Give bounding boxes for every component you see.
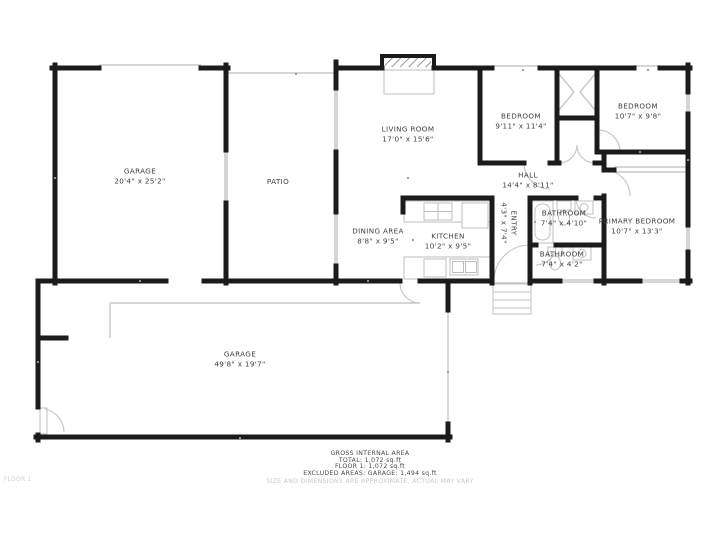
floor-plan-page: GARAGE 20'4" x 25'2" PATIO LIVING ROOM 1… <box>0 0 720 556</box>
fridge <box>462 203 488 228</box>
dishwasher <box>424 259 446 277</box>
room-label-bedroom-2: BEDROOM 10'7" x 9'8" <box>615 101 661 120</box>
summary-excluded: EXCLUDED AREAS: GARAGE: 1,494 sq.ft <box>266 471 473 478</box>
room-label-bedroom-1: BEDROOM 9'11" x 11'4" <box>495 111 546 130</box>
room-label-garage-top: GARAGE 20'4" x 25'2" <box>114 166 165 185</box>
room-label-hall: HALL 14'4" x 8'11" <box>502 170 553 189</box>
room-label-dining-area: DINING AREA 8'8" x 9'5" <box>352 226 404 245</box>
walls <box>36 56 690 440</box>
summary-disclaimer: SIZE AND DIMENSIONS ARE APPROXIMATE, ACT… <box>266 479 473 486</box>
room-label-primary-bedroom: PRIMARY BEDROOM 10'7" x 13'3" <box>599 216 676 235</box>
room-label-entry: ENTRY 4'3" x 7'4" <box>499 202 518 244</box>
door-leaf <box>40 408 47 434</box>
room-label-bathroom-2: BATHROOM 7'4" x 4'2" <box>540 249 584 268</box>
room-label-bathroom-1: BATHROOM 7'4" x 4'10" <box>541 208 587 227</box>
porch-steps <box>493 284 531 314</box>
room-label-living-room: LIVING ROOM 17'0" x 15'6" <box>382 124 435 143</box>
room-label-garage-bottom: GARAGE 49'8" x 19'7" <box>214 349 265 368</box>
room-label-patio: PATIO <box>267 177 289 187</box>
room-label-kitchen: KITCHEN 10'2" x 9'5" <box>425 231 471 250</box>
area-summary: GROSS INTERNAL AREA TOTAL: 1,072 sq.ft F… <box>266 451 473 485</box>
floor-tag: FLOOR 1 <box>4 477 32 483</box>
fireplace-hearth <box>384 70 434 94</box>
